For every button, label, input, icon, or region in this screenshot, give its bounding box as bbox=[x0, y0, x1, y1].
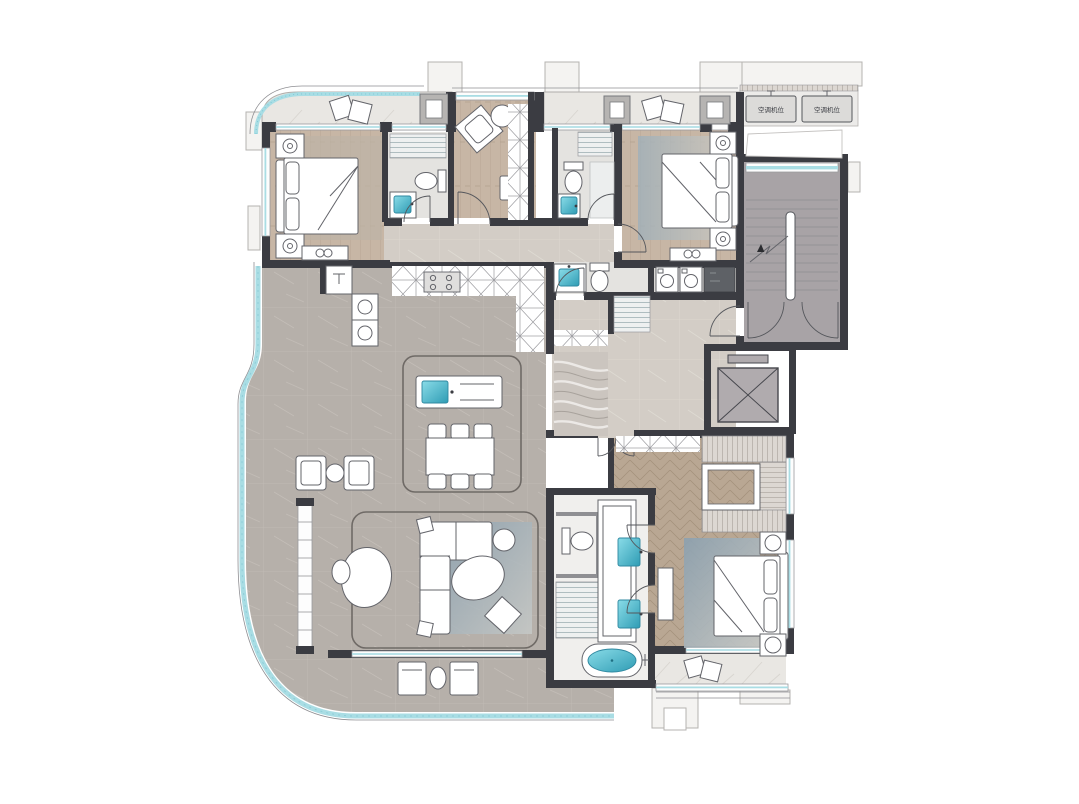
hall-floor bbox=[384, 224, 614, 262]
washer-icon bbox=[656, 267, 678, 292]
tall-cabinet bbox=[516, 296, 544, 352]
bench-icon bbox=[302, 246, 348, 260]
wardrobe-icon bbox=[702, 436, 786, 462]
bed-icon bbox=[276, 158, 358, 234]
runner-rug bbox=[554, 352, 608, 436]
bench-icon bbox=[670, 248, 716, 261]
shower-icon bbox=[556, 582, 598, 638]
closet-island-icon bbox=[702, 464, 760, 510]
living-west-window-wall bbox=[296, 498, 314, 654]
sink-icon bbox=[558, 194, 580, 218]
tv-cabinet-icon bbox=[658, 568, 673, 620]
bar-sink-icon bbox=[326, 266, 352, 294]
kitchen-cabinets bbox=[392, 266, 544, 296]
void-area bbox=[746, 130, 842, 158]
shoe-cabinet bbox=[554, 330, 608, 346]
floor-plan-drawing: 空调机位 空调机位 bbox=[0, 0, 1079, 804]
cooktop-icon bbox=[424, 272, 460, 292]
toilet-icon bbox=[564, 162, 583, 193]
toilet-icon bbox=[590, 263, 609, 292]
sink-icon bbox=[618, 538, 640, 566]
lounge-chair-icon bbox=[398, 662, 426, 695]
wardrobe-icon bbox=[616, 436, 700, 452]
ac-unit-label-left: 空调机位 bbox=[758, 105, 785, 114]
dining-chair-icon bbox=[428, 474, 492, 489]
counter bbox=[704, 267, 735, 292]
stool-icon bbox=[760, 532, 786, 554]
dining-chair-icon bbox=[428, 424, 492, 439]
floor-plan-canvas: 空调机位 空调机位 bbox=[0, 0, 1079, 804]
sink-icon bbox=[618, 600, 640, 628]
side-table-icon bbox=[493, 529, 515, 551]
nightstand-icon bbox=[710, 228, 736, 250]
side-table-icon bbox=[430, 667, 446, 689]
shower-icon bbox=[578, 132, 612, 156]
dining-area bbox=[426, 424, 494, 489]
wardrobe-icon bbox=[508, 104, 528, 220]
laundry bbox=[656, 267, 735, 292]
stool-icon bbox=[760, 634, 786, 656]
side-table-icon bbox=[326, 464, 344, 482]
organic-table-small bbox=[332, 560, 350, 584]
ac-unit-label-right: 空调机位 bbox=[814, 105, 841, 114]
dining-table-icon bbox=[426, 438, 494, 475]
nightstand-icon bbox=[276, 134, 304, 158]
nightstand-icon bbox=[710, 132, 736, 154]
vanity-icon bbox=[598, 500, 643, 642]
lounge-chair-icon bbox=[450, 662, 478, 695]
oven-column bbox=[352, 294, 378, 346]
north-parapet bbox=[742, 62, 862, 86]
armchair-icon bbox=[296, 456, 326, 490]
bed-icon bbox=[714, 552, 788, 640]
washer-icon bbox=[680, 267, 702, 292]
sink-icon bbox=[390, 192, 416, 218]
nightstand-icon bbox=[276, 234, 304, 258]
island-icon bbox=[416, 376, 502, 408]
armchair-icon bbox=[344, 456, 374, 490]
wardrobe-icon bbox=[702, 510, 786, 532]
shower-icon bbox=[390, 134, 446, 158]
bed-icon bbox=[662, 154, 738, 228]
shower-icon bbox=[614, 296, 650, 332]
